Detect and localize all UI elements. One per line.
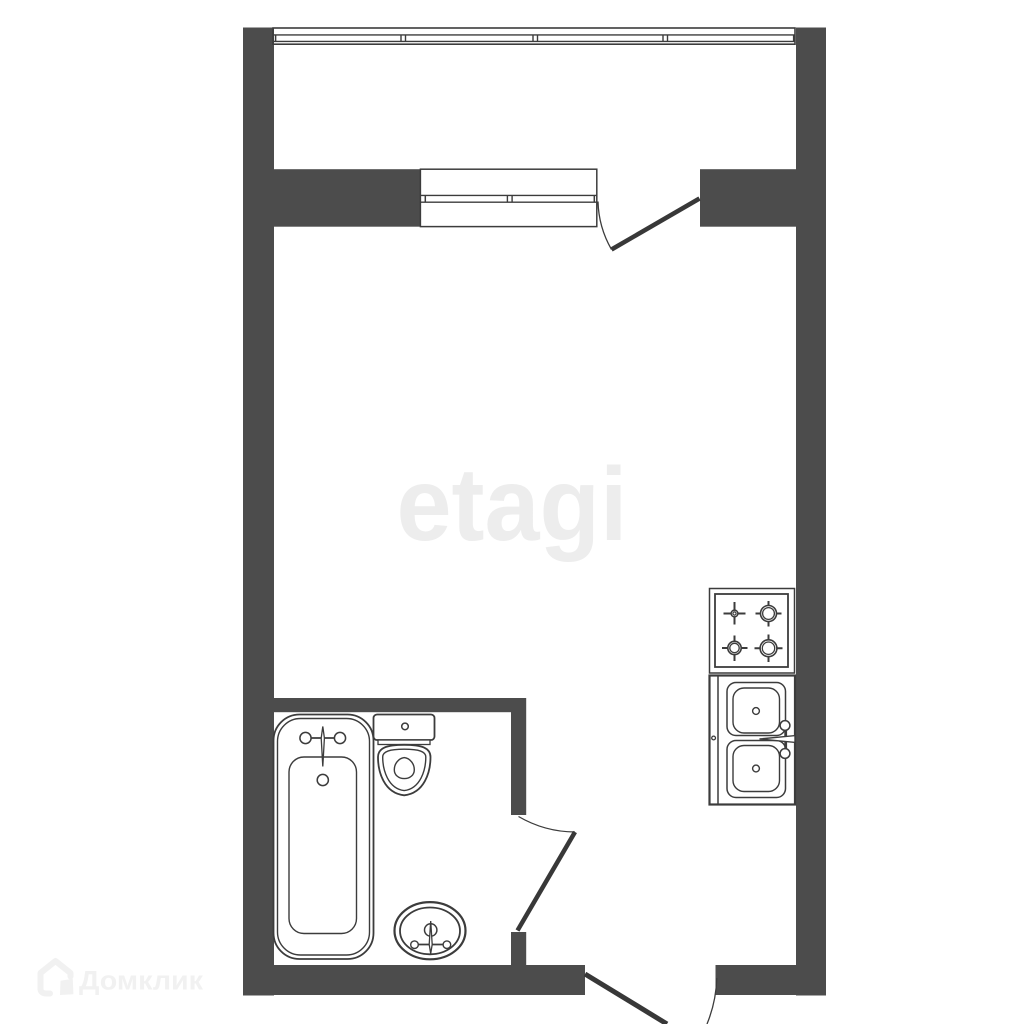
svg-text:Домклик: Домклик [79, 966, 204, 996]
svg-text:etagi: etagi [397, 447, 628, 563]
